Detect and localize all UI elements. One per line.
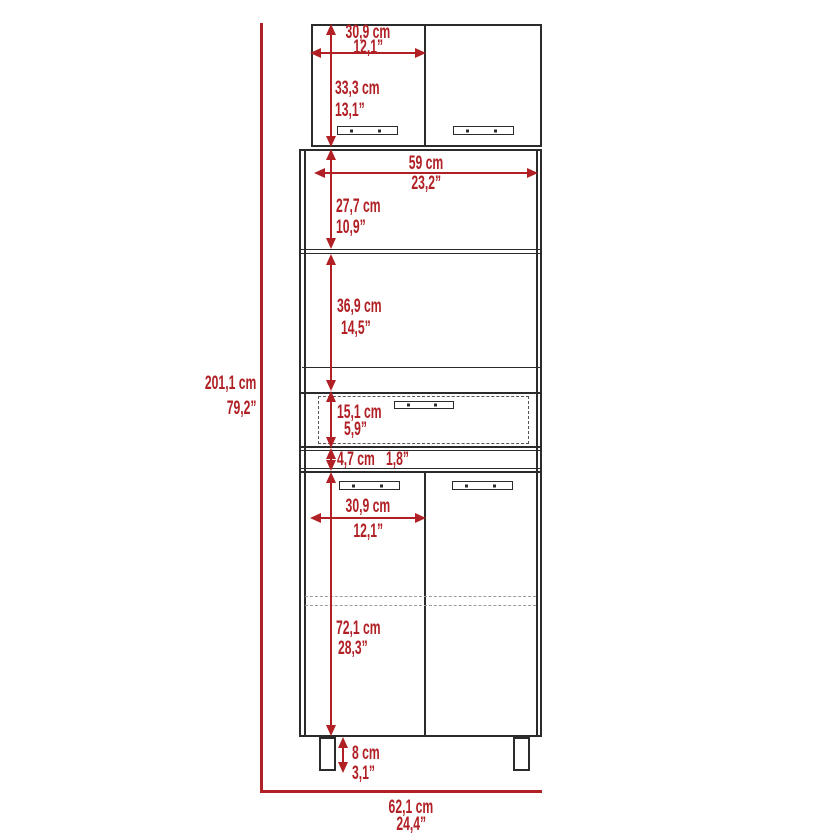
drawer-bottom-line — [301, 446, 540, 448]
upper-left-door-handle — [337, 126, 398, 135]
bottom-cabinet-height-label-in: 28,3” — [338, 641, 384, 657]
bottom-door-width-label-cm: 30,9 cm — [312, 499, 424, 515]
drawer-height-arrow — [330, 393, 333, 446]
microwave-space-height-label-cm: 36,9 cm — [337, 299, 407, 315]
body-inner-left-panel-line — [304, 151, 306, 735]
top-door-width-label-in: 12,1” — [312, 40, 424, 56]
microwave-space-height-label-in: 14,5” — [341, 321, 387, 337]
body-inner-right-panel-line — [536, 151, 538, 735]
top-cabinet-height-label-in: 13,1” — [335, 103, 381, 119]
hutch-width-label-cm: 59 cm — [316, 156, 536, 172]
leg-height-label-cm: 8 cm — [352, 746, 395, 762]
upper-right-door-handle — [453, 126, 514, 135]
overall-width-extension-line — [260, 790, 542, 793]
rail-height-arrow — [330, 450, 333, 469]
open-shelf-height-label-in: 10,9” — [336, 220, 382, 236]
lower-right-door-handle — [452, 481, 513, 490]
microwave-shelf-line — [302, 367, 540, 369]
bottom-door-width-label-in: 12,1” — [312, 524, 424, 540]
hutch-width-label-in: 23,2” — [316, 176, 536, 192]
drawer-top-line — [301, 392, 540, 394]
overall-width-label-in: 24,4” — [331, 817, 491, 833]
right-leg — [513, 737, 530, 771]
shelf-line-upper-2 — [301, 253, 540, 255]
leg-height-label-in: 3,1” — [352, 766, 388, 782]
shelf-line-upper — [301, 249, 540, 251]
left-leg — [319, 737, 336, 771]
hidden-shelf-dashed-line — [305, 596, 536, 597]
microwave-space-height-arrow — [330, 256, 333, 389]
hidden-shelf-dashed-line-2 — [305, 605, 536, 606]
upper-door-divider — [424, 26, 426, 145]
overall-height-extension-line — [260, 23, 263, 793]
leg-height-arrow — [342, 739, 345, 771]
open-shelf-height-label-cm: 27,7 cm — [336, 199, 406, 215]
cabinet-dimension-diagram: 201,1 cm 79,2” 62,1 cm 24,4” 30,9 cm 12,… — [0, 0, 840, 840]
drawer-height-label-in: 5,9” — [344, 422, 380, 438]
lower-left-door-handle — [339, 481, 400, 490]
rail-bottom-line-2 — [301, 471, 540, 473]
lower-door-divider — [424, 472, 426, 736]
overall-height-label-cm: 201,1 cm — [150, 376, 256, 392]
rail-height-label-in: 1,8” — [386, 452, 422, 468]
bottom-cabinet-height-label-cm: 72,1 cm — [336, 621, 406, 637]
top-cabinet-height-label-cm: 33,3 cm — [335, 81, 405, 97]
overall-height-label-in: 79,2” — [150, 401, 256, 417]
